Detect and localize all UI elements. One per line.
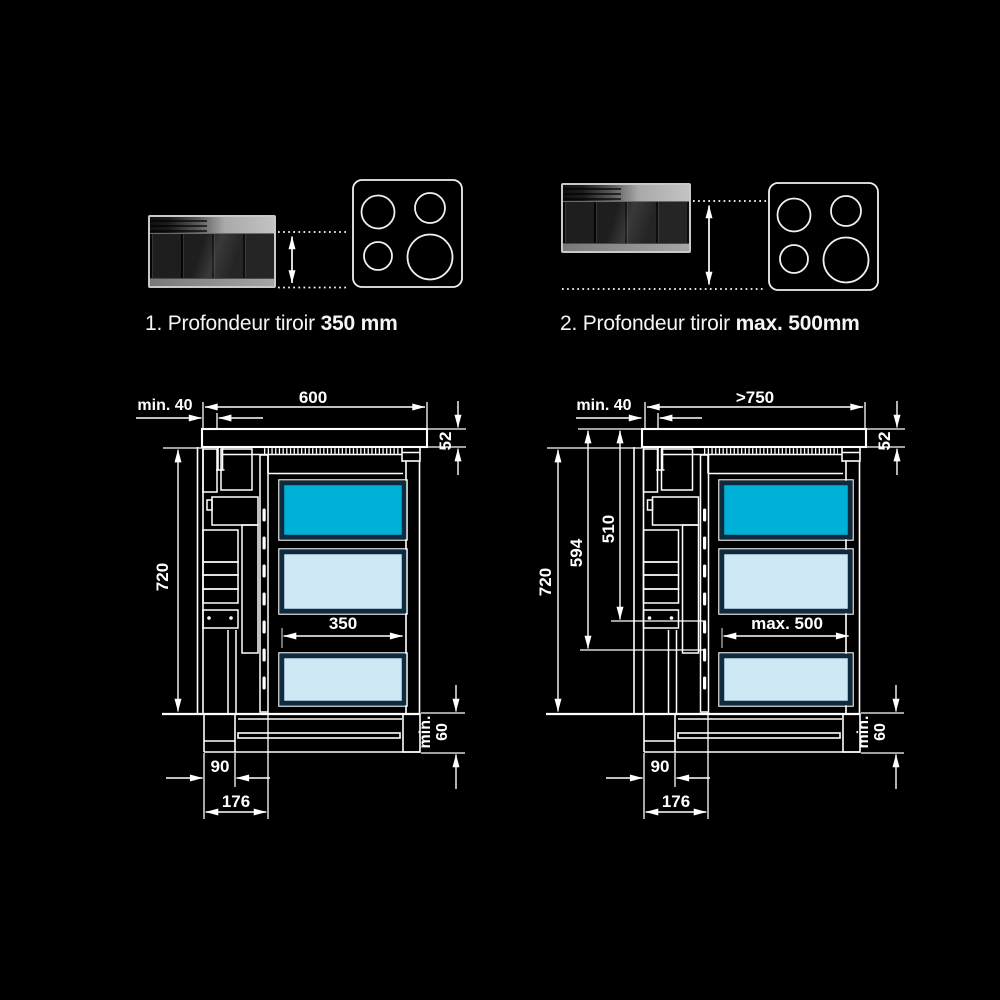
hob-icon [769,183,878,290]
dim-thickness-label: 52 [436,432,455,451]
installation-diagram-page: 1. Profondeur tiroir 350 mm 2. Profondeu… [0,0,1000,1000]
drawer-bottom [722,656,850,703]
dim-width-label: >750 [736,388,774,407]
dim-front-total-label: 176 [662,792,690,811]
front-assembly [644,449,709,714]
drawer-middle [282,552,404,611]
technical-drawing: min. 40 600 52 720 350 min. 60 90 176 [0,0,1000,1000]
drawers [719,480,853,706]
drawer-bottom [282,656,404,703]
dotted-leader-lines [562,201,766,289]
dim-offset-top-label: min. 40 [576,397,631,414]
dim-front-bottom-label: 90 [211,757,230,776]
dim-plinth-label-1: min. [417,716,434,749]
dim-height-label: 720 [536,568,555,596]
dim-offset-top-label: min. 40 [137,397,192,414]
dim-clearance-total-label: 594 [567,538,586,567]
drawer-middle [722,552,850,611]
dim-thickness-label: 52 [875,432,894,451]
drawer-top [722,483,850,537]
dim-plinth-label-2: 60 [872,723,889,741]
section-right: min. 40 >750 52 720 594 510 max. 500 min… [536,388,905,819]
figure-right-top [562,183,878,290]
dim-clearance-inner-label: 510 [599,515,618,543]
dim-plinth-label-1: min. [855,716,872,749]
dim-front-bottom-label: 90 [651,757,670,776]
figure-left-top [278,180,462,288]
dim-height-label: 720 [153,563,172,591]
dotted-leader-lines [278,232,349,288]
plinth [546,714,860,752]
hob-icon [353,180,462,287]
dim-front-total-label: 176 [222,792,250,811]
section-left: min. 40 600 52 720 350 min. 60 90 176 [136,388,466,819]
dim-width-label: 600 [299,388,327,407]
dim-drawer-depth-label: max. 500 [751,614,823,633]
drawers [279,480,407,706]
drawer-top [282,483,404,537]
front-assembly [203,449,268,714]
dim-plinth-label-2: 60 [434,723,451,741]
dim-drawer-depth-label: 350 [329,614,357,633]
plinth [162,714,420,752]
